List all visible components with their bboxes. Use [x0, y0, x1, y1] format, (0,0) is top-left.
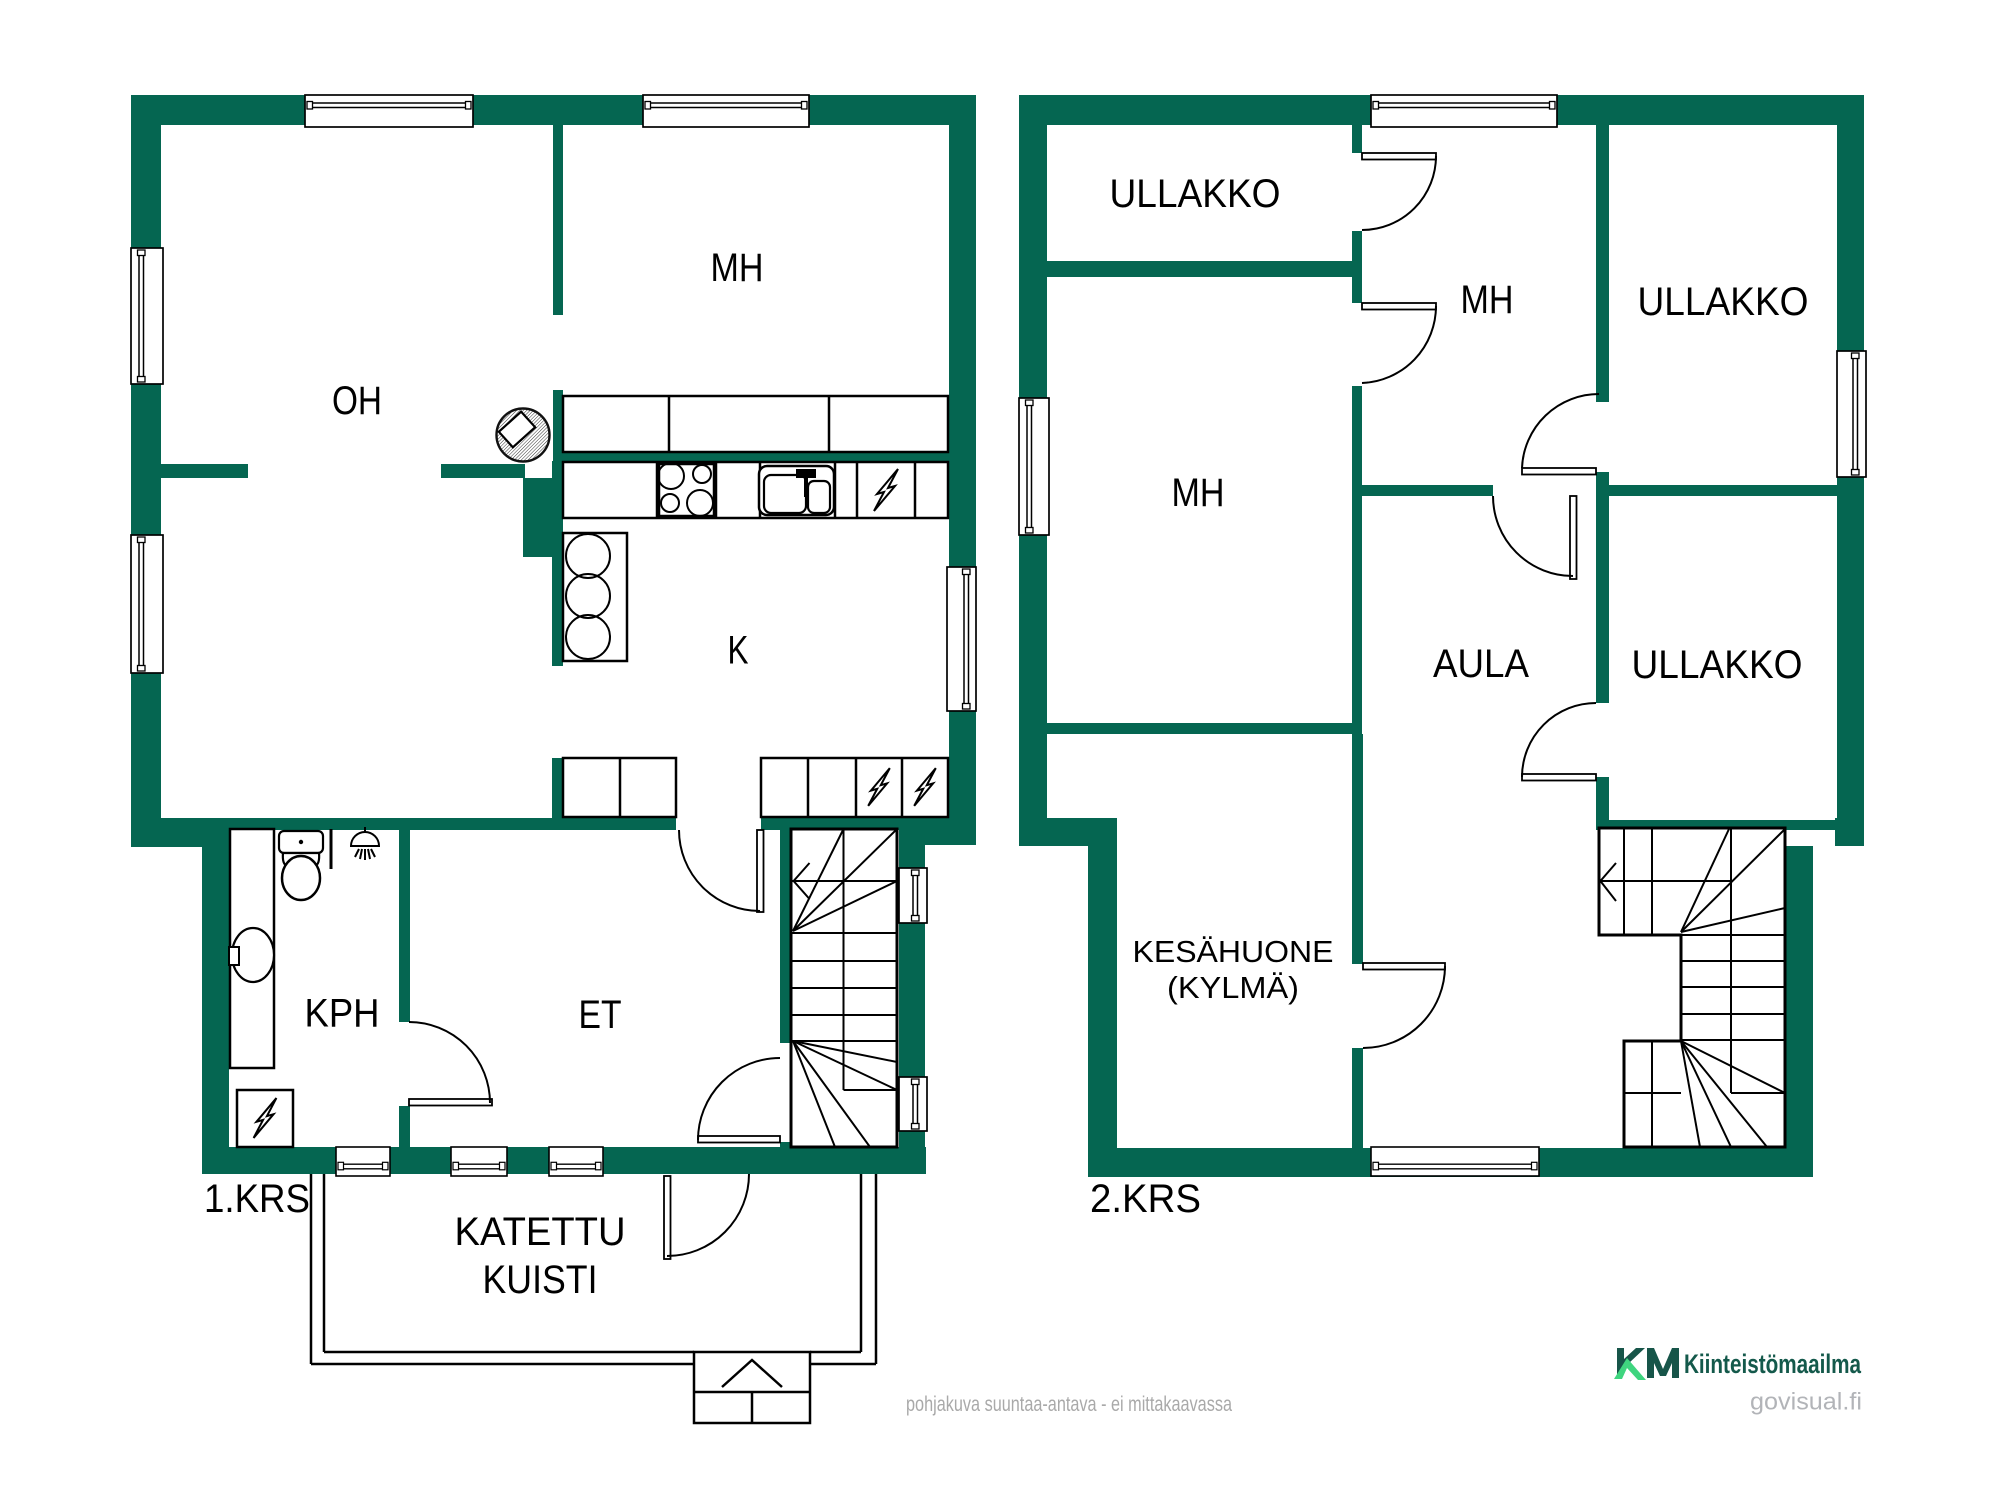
svg-text:pohjakuva suuntaa-antava - ei: pohjakuva suuntaa-antava - ei mittakaava… — [906, 1392, 1232, 1416]
svg-text:govisual.fi: govisual.fi — [1750, 1389, 1862, 1416]
svg-text:ULLAKKO: ULLAKKO — [1632, 643, 1803, 687]
svg-text:KPH: KPH — [305, 992, 380, 1036]
svg-text:1.KRS: 1.KRS — [204, 1177, 310, 1221]
svg-text:MH: MH — [1172, 471, 1225, 515]
svg-text:ULLAKKO: ULLAKKO — [1110, 172, 1281, 216]
svg-text:KATETTU: KATETTU — [455, 1210, 626, 1254]
svg-text:KESÄHUONE: KESÄHUONE — [1133, 934, 1334, 969]
svg-text:ULLAKKO: ULLAKKO — [1638, 280, 1809, 324]
svg-text:(KYLMÄ): (KYLMÄ) — [1167, 970, 1299, 1005]
svg-text:MH: MH — [711, 246, 764, 290]
svg-text:MH: MH — [1461, 278, 1514, 322]
svg-text:Kiinteistömaailma: Kiinteistömaailma — [1684, 1349, 1862, 1379]
svg-text:K: K — [728, 629, 749, 673]
svg-text:KUISTI: KUISTI — [483, 1258, 598, 1302]
svg-text:AULA: AULA — [1433, 642, 1529, 686]
svg-text:ET: ET — [579, 993, 622, 1037]
svg-text:OH: OH — [332, 379, 382, 423]
svg-text:2.KRS: 2.KRS — [1090, 1177, 1201, 1221]
